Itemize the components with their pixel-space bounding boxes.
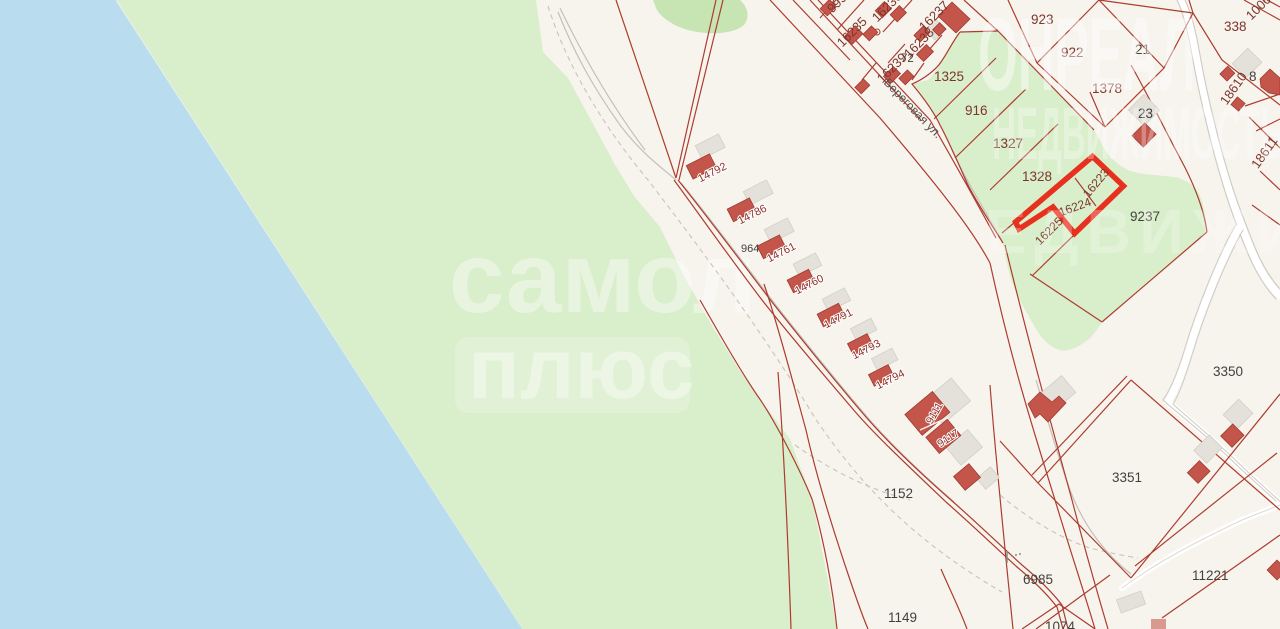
svg-text:1152: 1152 bbox=[884, 486, 913, 501]
svg-text:1074: 1074 bbox=[1045, 619, 1076, 629]
svg-text:6985: 6985 bbox=[1023, 572, 1053, 587]
svg-text:3351: 3351 bbox=[1112, 470, 1142, 485]
svg-text:плюс: плюс bbox=[468, 321, 695, 417]
svg-text:1149: 1149 bbox=[888, 610, 917, 625]
svg-text:3350: 3350 bbox=[1213, 364, 1243, 379]
svg-text:964: 964 bbox=[741, 243, 759, 255]
svg-text:11221: 11221 bbox=[1192, 568, 1229, 583]
svg-text:ЕДВИЖИМОС: ЕДВИЖИМОС bbox=[985, 198, 1280, 267]
svg-text:НЕДВИЖИМОСТЬ: НЕДВИЖИМОСТЬ bbox=[992, 92, 1280, 175]
svg-text:1325: 1325 bbox=[934, 69, 964, 84]
svg-text:8: 8 bbox=[1249, 69, 1257, 84]
svg-text:338: 338 bbox=[1224, 19, 1247, 34]
